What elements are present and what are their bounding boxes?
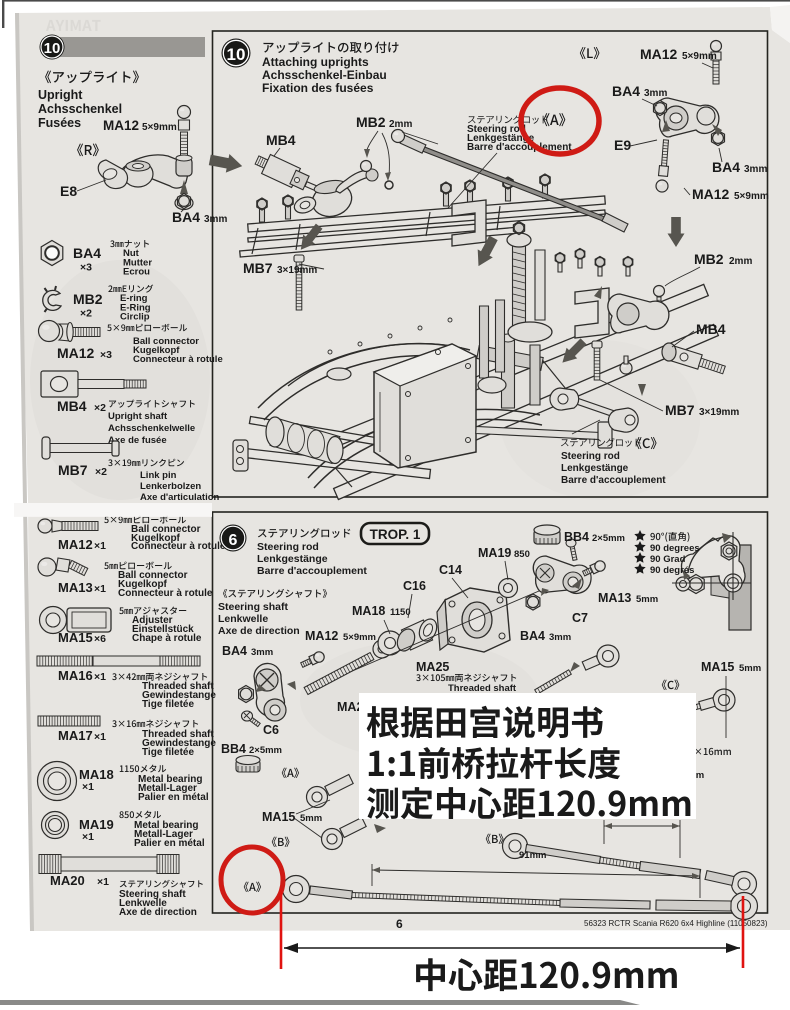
svg-text:Chape à rotule: Chape à rotule bbox=[132, 633, 202, 644]
svg-text:3mm: 3mm bbox=[644, 88, 667, 99]
svg-text:Tige filetée: Tige filetée bbox=[142, 699, 194, 710]
svg-text:3mm: 3mm bbox=[204, 214, 227, 225]
svg-text:5mm: 5mm bbox=[636, 594, 658, 605]
svg-text:×2: ×2 bbox=[94, 402, 106, 414]
svg-text:TROP. 1: TROP. 1 bbox=[370, 527, 421, 542]
svg-text:×1: ×1 bbox=[94, 540, 106, 552]
svg-text:MB7: MB7 bbox=[243, 260, 273, 276]
svg-text:BB4: BB4 bbox=[221, 742, 246, 756]
svg-text:Attaching uprights: Attaching uprights bbox=[262, 55, 369, 69]
svg-text:5mm: 5mm bbox=[739, 663, 761, 674]
svg-text:Upright: Upright bbox=[38, 88, 83, 102]
svg-text:90 Grad: 90 Grad bbox=[650, 554, 686, 565]
svg-text:Threaded shaft: Threaded shaft bbox=[448, 683, 517, 694]
svg-text:5×9mm: 5×9mm bbox=[734, 191, 769, 202]
svg-text:2mm: 2mm bbox=[729, 256, 752, 267]
svg-text:1150: 1150 bbox=[390, 607, 411, 618]
svg-text:Lenkwelle: Lenkwelle bbox=[218, 613, 268, 625]
svg-text:2×5mm: 2×5mm bbox=[592, 533, 625, 544]
svg-text:MA12: MA12 bbox=[692, 186, 730, 202]
svg-text:MA17: MA17 bbox=[58, 728, 93, 743]
svg-text:Ecrou: Ecrou bbox=[123, 267, 150, 278]
svg-text:MB2: MB2 bbox=[356, 114, 386, 130]
svg-text:×1: ×1 bbox=[82, 781, 94, 793]
svg-text:Barre d'accouplement: Barre d'accouplement bbox=[257, 565, 367, 577]
svg-text:Fusées: Fusées bbox=[38, 116, 81, 130]
svg-text:×2: ×2 bbox=[80, 308, 92, 320]
svg-text:6: 6 bbox=[396, 917, 403, 931]
svg-text:10: 10 bbox=[44, 40, 61, 57]
svg-text:MA16: MA16 bbox=[58, 668, 93, 683]
svg-text:90 degrees: 90 degrees bbox=[650, 543, 700, 554]
svg-text:×1: ×1 bbox=[94, 731, 106, 743]
svg-text:Axe d'articulation: Axe d'articulation bbox=[140, 492, 220, 503]
svg-text:Palier en métal: Palier en métal bbox=[138, 792, 209, 803]
svg-text:MA12: MA12 bbox=[103, 118, 139, 133]
svg-text:×1: ×1 bbox=[94, 671, 106, 683]
svg-text:Circlip: Circlip bbox=[120, 312, 150, 323]
svg-text:3mm: 3mm bbox=[251, 647, 273, 658]
svg-text:Upright shaft: Upright shaft bbox=[108, 411, 168, 422]
svg-text:MB4: MB4 bbox=[696, 321, 726, 337]
svg-text:MA19: MA19 bbox=[79, 817, 114, 832]
svg-text:MB2: MB2 bbox=[694, 251, 724, 267]
svg-text:Tige filetée: Tige filetée bbox=[142, 747, 194, 758]
svg-text:MA18: MA18 bbox=[352, 604, 385, 618]
svg-text:E8: E8 bbox=[60, 183, 77, 199]
svg-text:×1: ×1 bbox=[97, 876, 109, 888]
svg-text:Steering rod: Steering rod bbox=[257, 541, 319, 553]
svg-text:2×5mm: 2×5mm bbox=[249, 745, 282, 756]
svg-text:Axe de direction: Axe de direction bbox=[218, 625, 300, 637]
svg-text:MB7: MB7 bbox=[665, 402, 695, 418]
svg-text:BB4: BB4 bbox=[564, 530, 589, 544]
svg-text:MA12: MA12 bbox=[305, 629, 338, 643]
svg-text:3mm: 3mm bbox=[549, 632, 571, 643]
svg-text:E9: E9 bbox=[614, 137, 631, 153]
svg-text:Achsschenkel-Einbau: Achsschenkel-Einbau bbox=[262, 68, 387, 82]
svg-text:Axe de direction: Axe de direction bbox=[119, 907, 197, 918]
svg-text:MA15: MA15 bbox=[58, 630, 93, 645]
svg-text:C7: C7 bbox=[572, 611, 588, 625]
svg-text:BA4: BA4 bbox=[222, 644, 247, 658]
svg-text:Fixation des fusées: Fixation des fusées bbox=[262, 81, 374, 95]
svg-text:90 degrés: 90 degrés bbox=[650, 565, 694, 576]
svg-text:3×19mm: 3×19mm bbox=[699, 407, 739, 418]
svg-text:BA4: BA4 bbox=[520, 629, 545, 643]
svg-text:MA12: MA12 bbox=[57, 345, 95, 361]
svg-text:3mm: 3mm bbox=[744, 164, 767, 175]
svg-text:MA12: MA12 bbox=[640, 46, 678, 62]
svg-text:BA4: BA4 bbox=[712, 159, 740, 175]
svg-text:×6: ×6 bbox=[94, 633, 106, 645]
svg-text:Achsschenkel: Achsschenkel bbox=[38, 102, 122, 116]
svg-text:×3: ×3 bbox=[100, 349, 112, 361]
svg-text:2mm: 2mm bbox=[389, 119, 412, 130]
svg-text:C6: C6 bbox=[263, 723, 279, 737]
svg-text:BA4: BA4 bbox=[73, 245, 101, 261]
svg-text:Steering rod: Steering rod bbox=[561, 451, 620, 462]
svg-text:10: 10 bbox=[227, 45, 246, 64]
svg-text:Barre d'accouplement: Barre d'accouplement bbox=[561, 475, 666, 486]
svg-text:56323 RCTR Scania R620 6x4 Hig: 56323 RCTR Scania R620 6x4 Highline (110… bbox=[584, 919, 768, 928]
svg-text:5×9mm: 5×9mm bbox=[343, 632, 376, 643]
svg-text:Lenkgestänge: Lenkgestänge bbox=[561, 463, 629, 474]
svg-text:MA13: MA13 bbox=[58, 580, 93, 595]
svg-text:MA19: MA19 bbox=[478, 546, 511, 560]
svg-text:×1: ×1 bbox=[82, 831, 94, 843]
svg-text:5×9mm: 5×9mm bbox=[682, 51, 717, 62]
svg-text:91mm: 91mm bbox=[519, 850, 546, 861]
svg-text:Connecteur à rotule: Connecteur à rotule bbox=[133, 354, 223, 365]
svg-text:850: 850 bbox=[514, 549, 530, 560]
svg-text:Connecteur à rotule: Connecteur à rotule bbox=[131, 541, 226, 552]
svg-text:BA4: BA4 bbox=[172, 209, 200, 225]
svg-text:×1: ×1 bbox=[94, 583, 106, 595]
svg-text:MB2: MB2 bbox=[73, 291, 103, 307]
svg-text:C16: C16 bbox=[403, 579, 426, 593]
svg-text:Lenkgestänge: Lenkgestänge bbox=[257, 553, 328, 565]
svg-text:MA15: MA15 bbox=[701, 660, 734, 674]
svg-text:Connecteur à rotule: Connecteur à rotule bbox=[118, 588, 213, 599]
svg-text:6: 6 bbox=[229, 532, 238, 549]
svg-text:C14: C14 bbox=[439, 563, 462, 577]
svg-text:MB7: MB7 bbox=[58, 462, 88, 478]
svg-text:Palier en métal: Palier en métal bbox=[134, 838, 205, 849]
svg-text:MA20: MA20 bbox=[50, 873, 85, 888]
svg-text:MA18: MA18 bbox=[79, 767, 114, 782]
svg-text:MA25: MA25 bbox=[416, 660, 449, 674]
svg-text:MA15: MA15 bbox=[262, 810, 295, 824]
svg-text:×3: ×3 bbox=[80, 262, 92, 274]
svg-text:BA4: BA4 bbox=[612, 83, 640, 99]
svg-text:Achsschenkelwelle: Achsschenkelwelle bbox=[108, 423, 195, 434]
svg-text:5×9mm: 5×9mm bbox=[142, 122, 177, 133]
svg-text:MA13: MA13 bbox=[598, 591, 631, 605]
svg-text:Link pin: Link pin bbox=[140, 470, 177, 481]
svg-text:×2: ×2 bbox=[95, 466, 107, 478]
svg-text:MA12: MA12 bbox=[58, 537, 93, 552]
svg-text:MB4: MB4 bbox=[57, 398, 87, 414]
svg-text:Steering shaft: Steering shaft bbox=[218, 601, 289, 613]
svg-text:MB4: MB4 bbox=[266, 132, 296, 148]
svg-text:5mm: 5mm bbox=[300, 813, 322, 824]
svg-text:Lenkerbolzen: Lenkerbolzen bbox=[140, 481, 201, 492]
